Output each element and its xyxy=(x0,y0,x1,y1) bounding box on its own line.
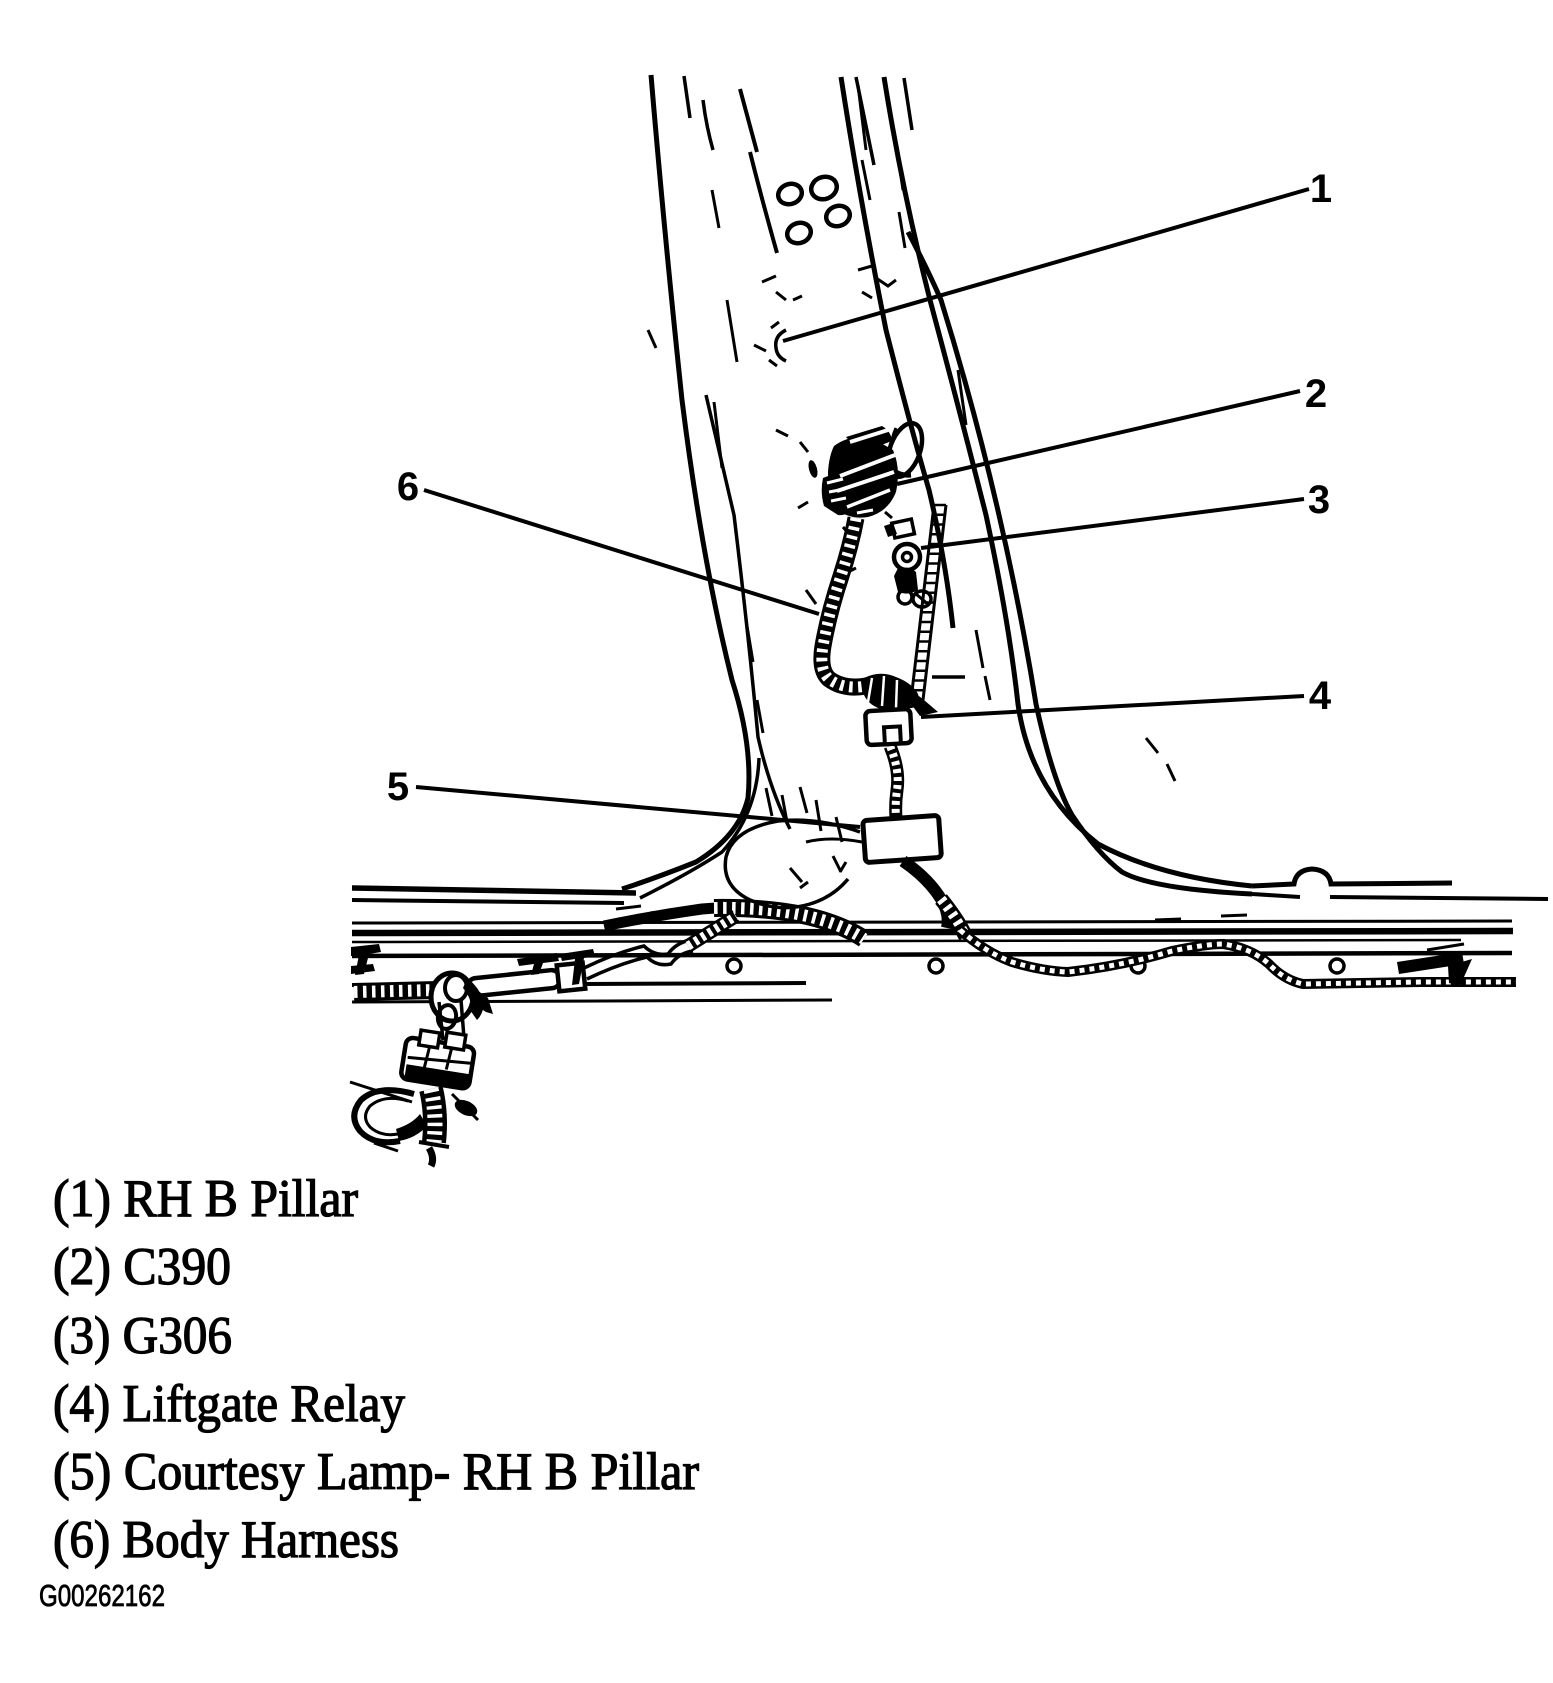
svg-text:3: 3 xyxy=(1308,478,1330,522)
svg-text:G00262162: G00262162 xyxy=(39,1578,165,1613)
svg-text:(2) C390: (2) C390 xyxy=(53,1238,231,1296)
svg-text:(4) Liftgate Relay: (4) Liftgate Relay xyxy=(53,1375,405,1433)
svg-text:2: 2 xyxy=(1305,372,1327,416)
svg-text:1: 1 xyxy=(1310,167,1332,211)
svg-text:(6) Body Harness: (6) Body Harness xyxy=(53,1511,399,1569)
svg-text:(3) G306: (3) G306 xyxy=(53,1307,232,1365)
svg-text:(1) RH B Pillar: (1) RH B Pillar xyxy=(53,1170,358,1228)
svg-text:6: 6 xyxy=(397,465,419,509)
svg-text:5: 5 xyxy=(387,765,409,809)
svg-text:4: 4 xyxy=(1309,674,1332,718)
svg-text:(5) Courtesy Lamp- RH B Pillar: (5) Courtesy Lamp- RH B Pillar xyxy=(53,1443,699,1501)
